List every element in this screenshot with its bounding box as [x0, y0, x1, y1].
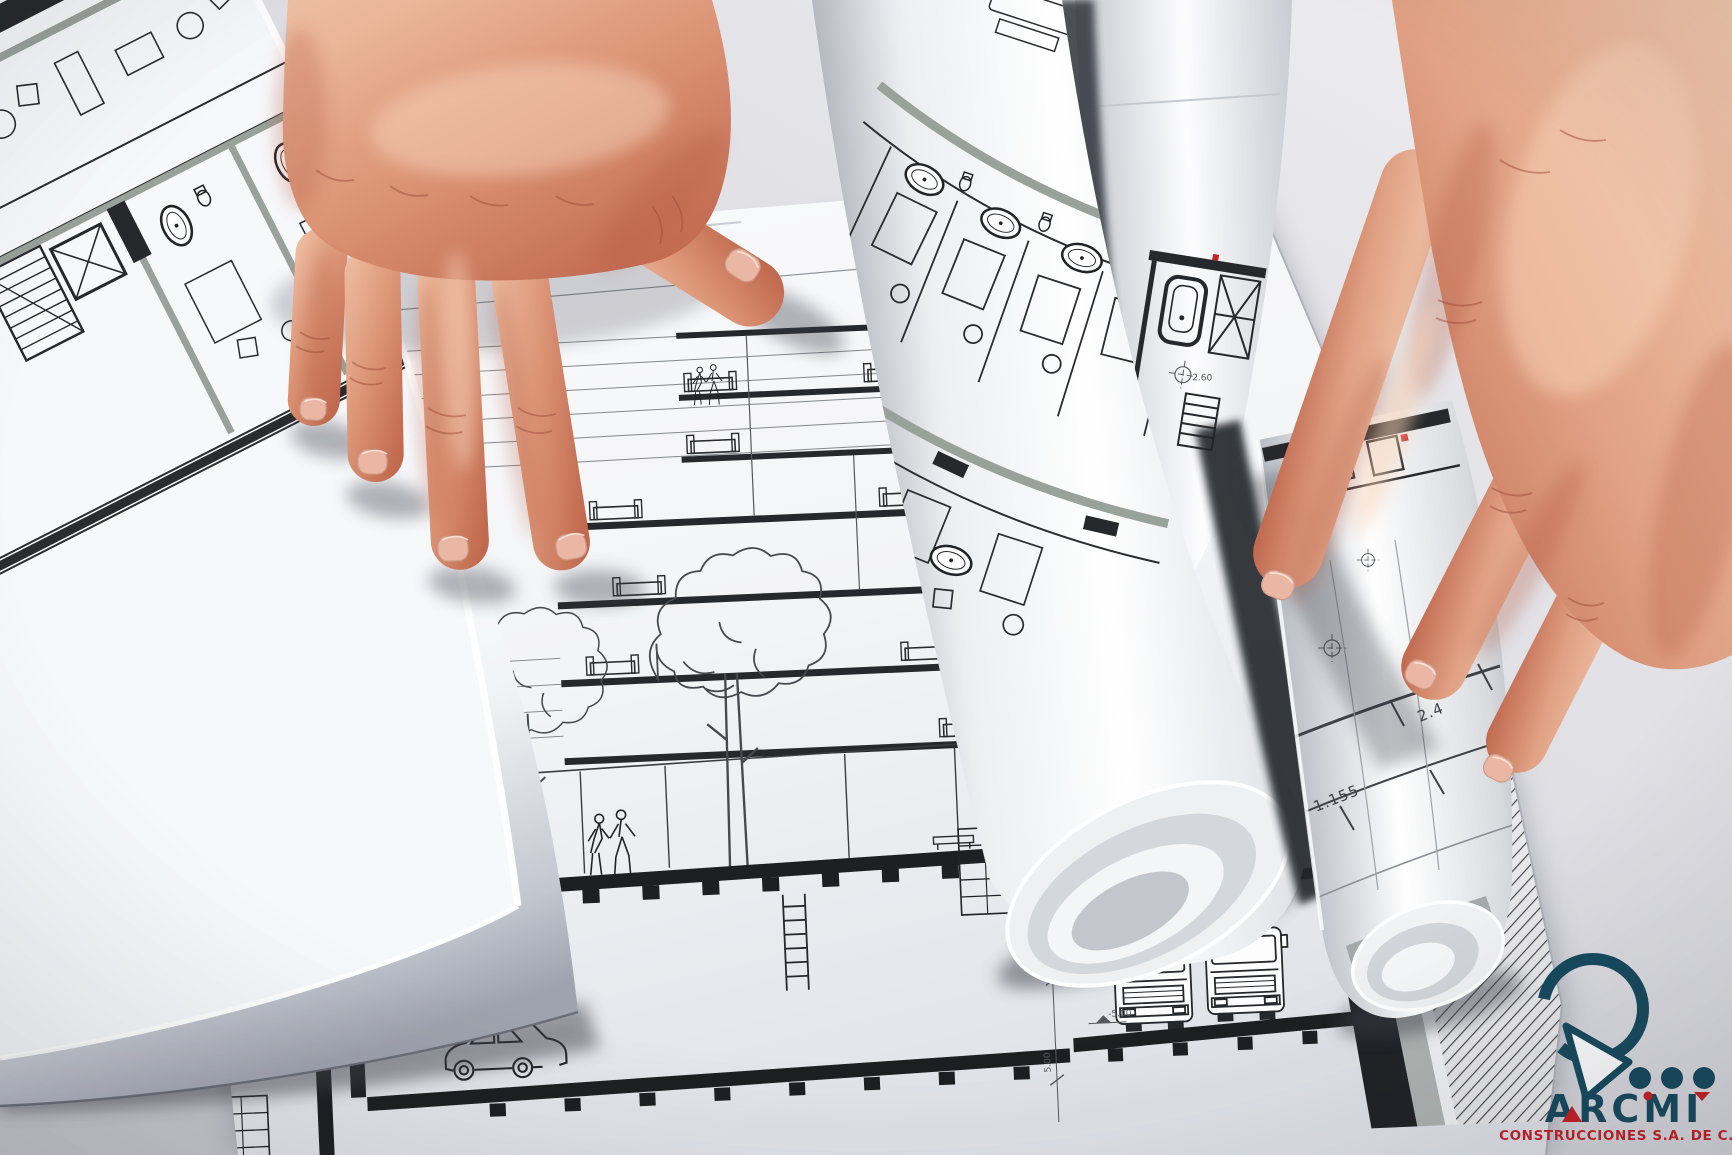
blueprint-photo: 4.00 3.20 4.00 5.00 4.20 5.00 5.00 0.00 …	[0, 0, 1732, 1155]
vignette	[0, 0, 1732, 1155]
photo-canvas: 4.00 3.20 4.00 5.00 4.20 5.00 5.00 0.00 …	[0, 0, 1732, 1155]
